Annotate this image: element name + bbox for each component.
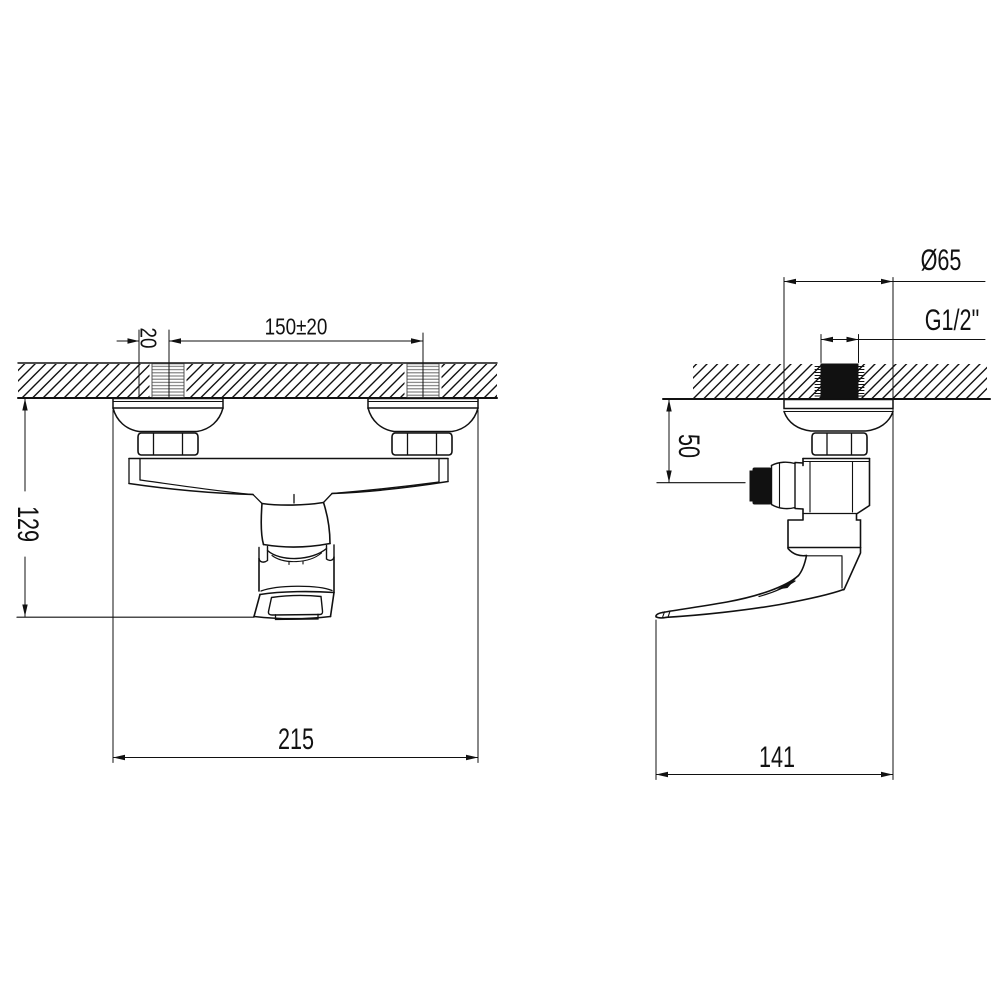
mixer-body-side xyxy=(788,459,870,548)
supply-thread-left xyxy=(152,364,184,398)
mounting-nut-left xyxy=(138,433,198,455)
spout-front xyxy=(254,557,334,620)
mixer-body-front xyxy=(129,459,448,548)
mounting-nut-side xyxy=(812,433,867,455)
dim-thread-offset-label: 20 xyxy=(135,328,162,349)
drawing-linework xyxy=(0,0,1000,1000)
front-view xyxy=(17,330,497,763)
dim-inlet-spacing-label: 150±20 xyxy=(265,314,328,341)
mounting-nut-right xyxy=(392,433,452,455)
side-view xyxy=(656,278,990,780)
escutcheon-right xyxy=(368,399,478,432)
dim-wall-to-outlet-label: 50 xyxy=(671,434,705,458)
dim-height-label: 129 xyxy=(10,506,44,542)
connection-thread-side xyxy=(815,364,864,399)
technical-drawing-sheet: 150±20 20 129 215 Ø65 G1/2" 50 141 xyxy=(0,0,1000,1000)
dim-connection-thread-label: G1/2" xyxy=(925,304,980,338)
temperature-knob-side xyxy=(750,462,804,509)
dim-escutcheon-diameter-label: Ø65 xyxy=(921,244,962,278)
dim-overall-depth-label: 141 xyxy=(759,741,795,775)
dimensions-side xyxy=(656,278,985,780)
lever-handle-side xyxy=(656,548,861,618)
dim-overall-width-label: 215 xyxy=(278,723,314,757)
diverter-collar-front xyxy=(259,545,334,565)
escutcheon-left xyxy=(113,399,223,432)
escutcheon-side xyxy=(784,400,893,432)
